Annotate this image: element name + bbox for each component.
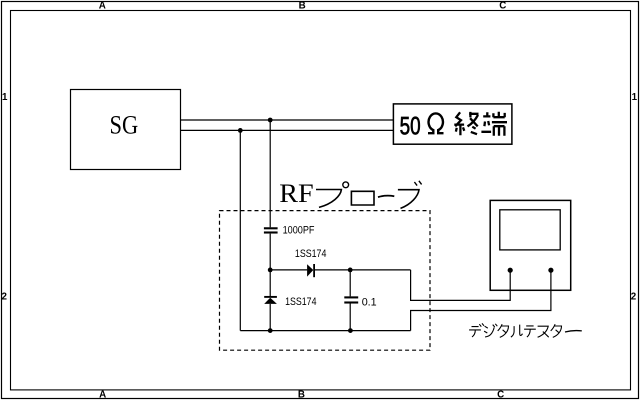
svg-text:SG: SG [110, 110, 139, 139]
svg-text:A: A [99, 390, 106, 400]
svg-text:A: A [99, 0, 106, 11]
svg-text:B: B [298, 390, 305, 400]
svg-text:C: C [499, 0, 506, 11]
svg-text:2: 2 [1, 292, 7, 303]
svg-text:1: 1 [2, 92, 8, 103]
svg-text:0.1: 0.1 [362, 297, 377, 309]
svg-text:1000PF: 1000PF [283, 225, 315, 237]
svg-text:1: 1 [632, 92, 638, 103]
svg-text:2: 2 [631, 292, 637, 303]
svg-text:B: B [299, 0, 306, 11]
svg-text:RF: RF [279, 179, 313, 208]
svg-text:1SS174: 1SS174 [295, 248, 327, 260]
svg-text:1SS174: 1SS174 [285, 296, 316, 308]
svg-text:50: 50 [400, 113, 421, 141]
svg-text:C: C [497, 390, 504, 400]
